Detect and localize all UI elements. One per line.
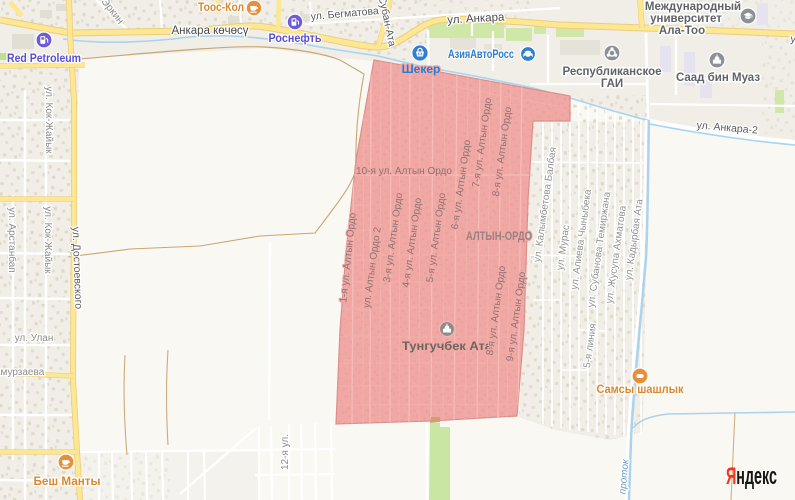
svg-text:Шекер: Шекер	[402, 62, 441, 76]
svg-text:Роснефть: Роснефть	[269, 33, 322, 45]
svg-text:Ала-Тоо: Ала-Тоо	[659, 25, 705, 37]
svg-text:10-я ул. Алтын Ордо: 10-я ул. Алтын Ордо	[356, 166, 452, 177]
svg-text:Яндекс: Яндекс	[726, 463, 777, 490]
svg-text:ул. Улан: ул. Улан	[15, 333, 54, 344]
svg-text:АзияАвтоРосс: АзияАвтоРосс	[448, 47, 514, 61]
svg-text:ул. Арстанбап: ул. Арстанбап	[6, 207, 18, 272]
svg-text:Шамурзаева: Шамурзаева	[0, 367, 45, 378]
svg-text:ул. Кок-Жайык: ул. Кок-Жайык	[43, 86, 54, 154]
svg-text:Республиканское: Республиканское	[562, 66, 661, 78]
svg-text:университет: университет	[650, 13, 722, 25]
svg-text:Самсы шашлык: Самсы шашлык	[597, 382, 685, 396]
svg-text:АЛТЫН-ОРДО: АЛТЫН-ОРДО	[466, 229, 532, 243]
svg-text:12-я ул.: 12-я ул.	[280, 434, 291, 470]
svg-text:Саад бин Муаз: Саад бин Муаз	[676, 72, 760, 84]
svg-text:Беш Манты: Беш Манты	[34, 474, 101, 488]
svg-text:Red Petroleum: Red Petroleum	[7, 51, 81, 65]
svg-text:Международный: Международный	[645, 1, 741, 13]
svg-text:Анкара көчөсү: Анкара көчөсү	[171, 25, 248, 37]
svg-text:Тунгучбек Ата: Тунгучбек Ата	[402, 339, 492, 353]
svg-text:ул. Кок-Жайык: ул. Кок-Жайык	[42, 206, 53, 274]
svg-text:Тоос-Кол: Тоос-Кол	[198, 2, 244, 14]
svg-text:ГАИ: ГАИ	[601, 78, 623, 90]
